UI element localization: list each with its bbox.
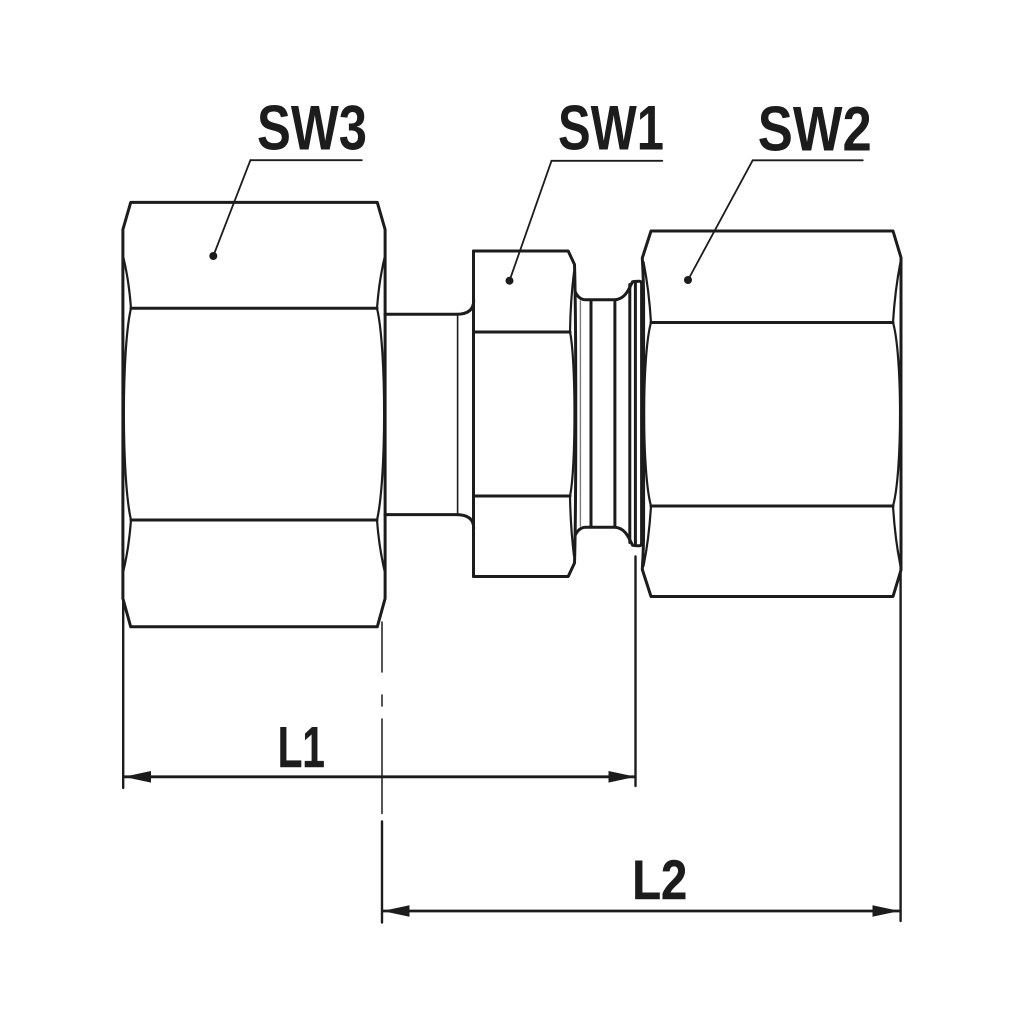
svg-text:SW3: SW3 xyxy=(257,93,367,163)
svg-text:L2: L2 xyxy=(632,848,687,911)
svg-text:SW1: SW1 xyxy=(558,94,664,164)
svg-text:SW2: SW2 xyxy=(758,95,872,165)
svg-text:L1: L1 xyxy=(278,716,325,780)
